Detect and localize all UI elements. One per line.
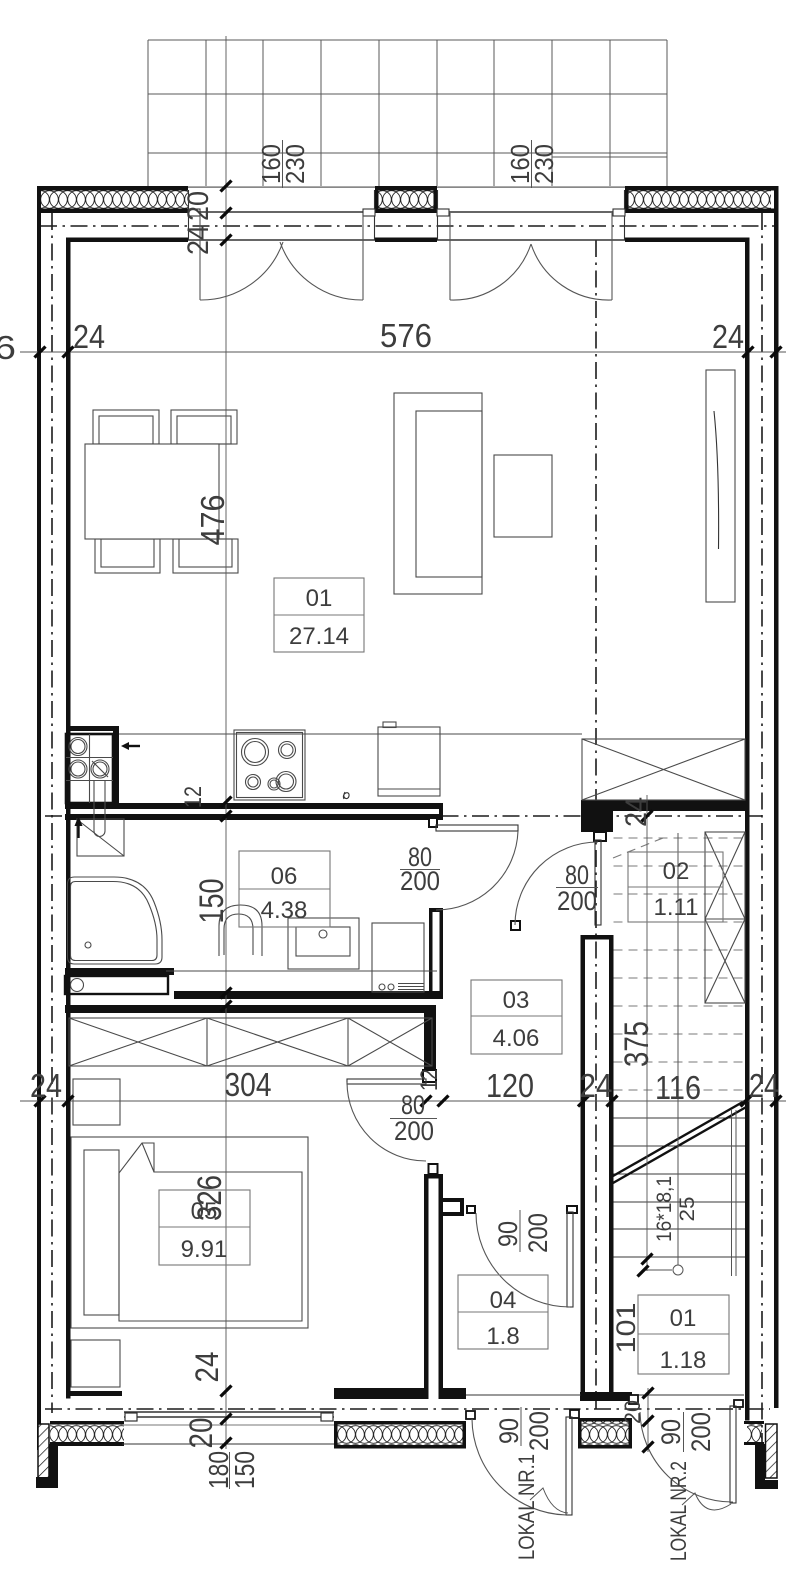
svg-text:24: 24 (749, 1067, 779, 1104)
svg-text:25: 25 (676, 1197, 699, 1222)
svg-text:90: 90 (656, 1419, 686, 1445)
svg-text:20: 20 (620, 1400, 645, 1424)
svg-text:24: 24 (712, 318, 744, 355)
svg-text:230: 230 (280, 144, 310, 184)
svg-text:200: 200 (686, 1412, 716, 1452)
svg-text:06: 06 (271, 863, 298, 890)
svg-text:116: 116 (655, 1069, 701, 1106)
svg-text:02: 02 (663, 858, 690, 885)
svg-text:1.11: 1.11 (654, 894, 699, 921)
svg-text:4.06: 4.06 (493, 1025, 540, 1052)
svg-text:90: 90 (493, 1221, 523, 1247)
svg-text:24: 24 (182, 225, 215, 255)
svg-text:24: 24 (30, 1067, 62, 1104)
svg-text:12: 12 (180, 786, 207, 808)
svg-text:20: 20 (182, 191, 215, 221)
svg-text:01: 01 (306, 585, 333, 612)
svg-text:90: 90 (494, 1418, 524, 1444)
svg-text:101: 101 (611, 1303, 641, 1354)
svg-text:24: 24 (580, 1067, 613, 1104)
svg-text:120: 120 (486, 1067, 534, 1104)
svg-text:150: 150 (229, 1451, 260, 1489)
svg-text:200: 200 (523, 1213, 553, 1253)
svg-text:4.38: 4.38 (261, 897, 308, 924)
svg-text:200: 200 (400, 866, 440, 896)
svg-text:16*18,1: 16*18,1 (653, 1176, 676, 1242)
svg-text:24: 24 (189, 1352, 225, 1383)
svg-text:200: 200 (394, 1116, 434, 1146)
svg-text:6: 6 (0, 329, 16, 366)
svg-text:200: 200 (524, 1411, 554, 1451)
svg-text:24: 24 (73, 318, 105, 355)
svg-text:03: 03 (503, 987, 530, 1014)
svg-text:9.91: 9.91 (181, 1236, 228, 1263)
svg-text:230: 230 (529, 144, 559, 184)
svg-text:20: 20 (183, 1418, 219, 1449)
svg-text:200: 200 (557, 886, 597, 916)
svg-text:LOKAL NR.2: LOKAL NR.2 (666, 1461, 691, 1561)
svg-text:476: 476 (194, 495, 231, 546)
svg-text:12: 12 (416, 1069, 443, 1091)
svg-text:24: 24 (620, 797, 653, 827)
svg-text:01: 01 (670, 1305, 697, 1332)
svg-text:27.14: 27.14 (289, 623, 349, 650)
svg-text:304: 304 (225, 1066, 272, 1103)
svg-text:375: 375 (618, 1021, 656, 1067)
svg-text:1.18: 1.18 (660, 1347, 707, 1374)
svg-text:1.8: 1.8 (486, 1323, 519, 1350)
svg-text:576: 576 (380, 317, 432, 354)
svg-text:150: 150 (193, 879, 231, 924)
svg-text:04: 04 (490, 1287, 517, 1314)
svg-text:05: 05 (191, 1198, 218, 1225)
svg-text:LOKAL NR.1: LOKAL NR.1 (514, 1454, 539, 1560)
